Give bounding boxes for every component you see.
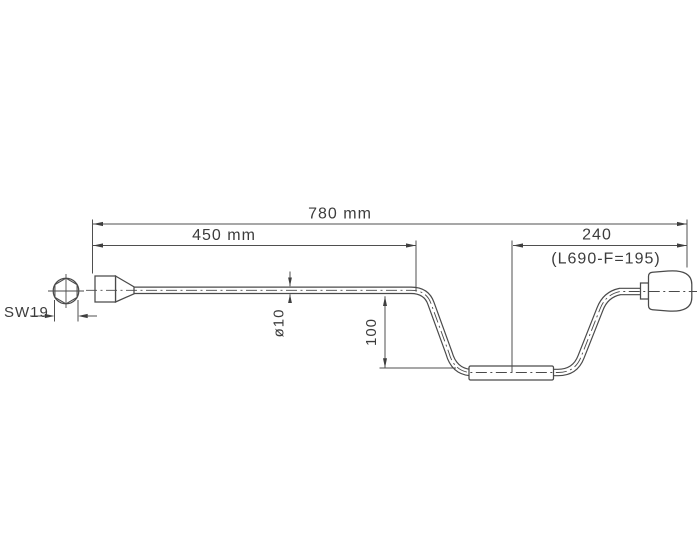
shaft-tube — [133, 290, 641, 372]
dimension-upper-shaft: 450 mm — [93, 227, 416, 292]
arrowhead-right — [677, 243, 687, 247]
shaft-tube-core — [133, 290, 641, 372]
arrowhead-down — [288, 278, 292, 287]
arrowhead-right — [677, 222, 687, 226]
dim-label-hex-width: SW19 — [4, 304, 49, 321]
dim-label-total-length: 780 mm — [308, 206, 372, 223]
dim-label-crank-drop: 100 — [363, 318, 380, 346]
dimension-tube-diameter: ø10 — [271, 272, 292, 338]
dim-label-crank-arm-note: (L690-F=195) — [551, 251, 660, 268]
arrowhead-left — [93, 243, 103, 247]
arrowhead-down — [383, 358, 387, 368]
arrowhead-left — [78, 314, 88, 318]
dimension-hex-width: SW19 — [4, 300, 97, 322]
arrowhead-left — [93, 222, 103, 226]
dim-label-crank-arm: 240 — [582, 227, 612, 244]
knob-collar — [641, 283, 649, 299]
dim-label-upper-shaft: 450 mm — [192, 227, 256, 244]
crank-handle-technical-drawing: 780 mm 450 mm 240 (L690-F=195) ø10 — [0, 0, 700, 560]
drawing-canvas: 780 mm 450 mm 240 (L690-F=195) ø10 — [0, 0, 700, 560]
dim-label-tube-diameter: ø10 — [271, 309, 288, 338]
arrowhead-right — [406, 243, 416, 247]
arrowhead-left — [513, 243, 523, 247]
hex-end-view — [48, 274, 84, 308]
arrowhead-up — [288, 294, 292, 303]
handle-knob — [649, 271, 692, 311]
hex-adapter-socket — [95, 276, 116, 302]
crank-handle-outline — [86, 271, 697, 380]
grip-sleeve — [469, 366, 554, 380]
arrowhead-up — [383, 296, 387, 306]
adapter-taper — [116, 276, 135, 302]
